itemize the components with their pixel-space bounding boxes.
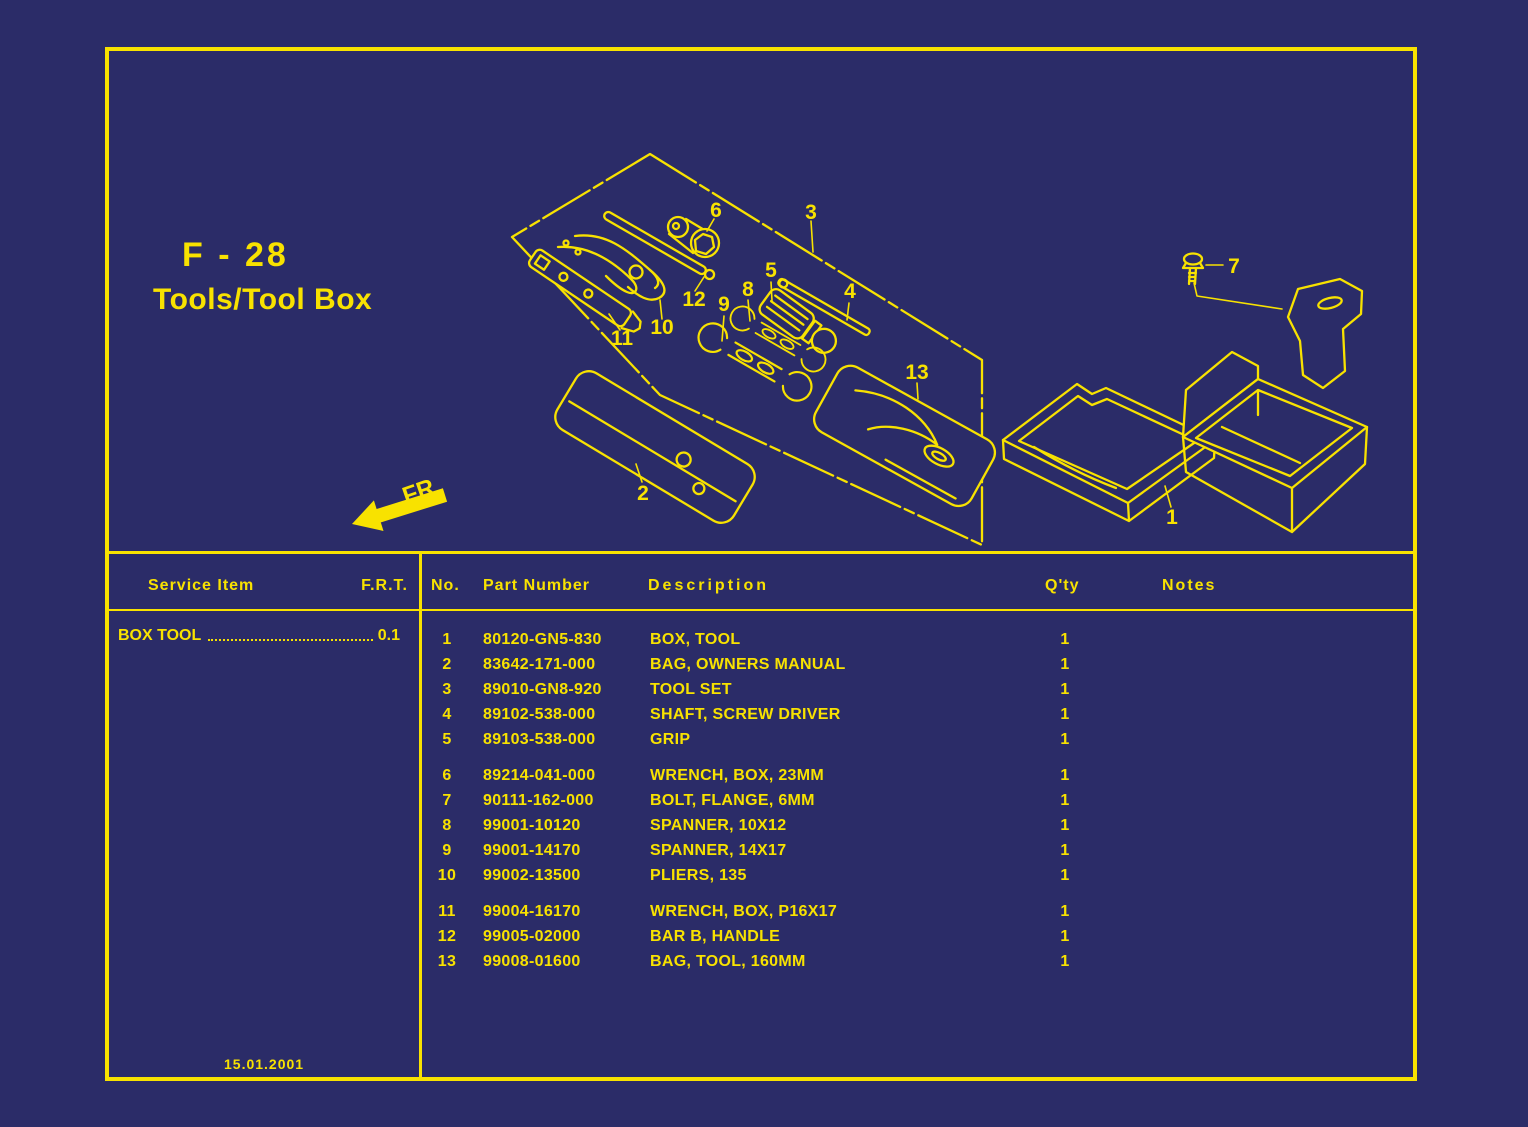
part-description: SPANNER, 10X12 (650, 818, 786, 834)
part-number: 99004-16170 (483, 904, 581, 920)
part-number: 99008-01600 (483, 954, 581, 970)
part-description: PLIERS, 135 (650, 868, 747, 884)
part-number: 99002-13500 (483, 868, 581, 884)
part-qty: 1 (1040, 732, 1090, 748)
part-description: BAR B, HANDLE (650, 929, 780, 945)
table-row: 6 89214-041-000 WRENCH, BOX, 23MM 1 (420, 764, 1417, 789)
part-qty: 1 (1040, 868, 1090, 884)
part-number: 99001-10120 (483, 818, 581, 834)
part-qty: 1 (1040, 657, 1090, 673)
table-row: 10 99002-13500 PLIERS, 135 1 (420, 864, 1417, 889)
part-description: BAG, TOOL, 160MM (650, 954, 806, 970)
part-number: 89102-538-000 (483, 707, 595, 723)
part-number: 99005-02000 (483, 929, 581, 945)
part-qty: 1 (1040, 818, 1090, 834)
part-qty: 1 (1040, 843, 1090, 859)
part-no: 3 (427, 682, 467, 698)
part-qty: 1 (1040, 929, 1090, 945)
part-no: 1 (427, 632, 467, 648)
frt-header: F.R.T. (328, 578, 408, 594)
part-no: 7 (427, 793, 467, 809)
service-row: BOX TOOL 0.1 (118, 628, 400, 644)
col-header-description: Description (648, 578, 769, 594)
part-no: 13 (427, 954, 467, 970)
part-qty: 1 (1040, 707, 1090, 723)
part-description: WRENCH, BOX, P16X17 (650, 904, 837, 920)
table-row: 3 89010-GN8-920 TOOL SET 1 (420, 678, 1417, 703)
part-number: 83642-171-000 (483, 657, 595, 673)
table-row: 9 99001-14170 SPANNER, 14X17 1 (420, 839, 1417, 864)
part-no: 2 (427, 657, 467, 673)
part-no: 8 (427, 818, 467, 834)
service-frt-value: 0.1 (378, 628, 400, 644)
part-description: WRENCH, BOX, 23MM (650, 768, 824, 784)
part-no: 5 (427, 732, 467, 748)
part-description: BAG, OWNERS MANUAL (650, 657, 846, 673)
part-qty: 1 (1040, 904, 1090, 920)
part-qty: 1 (1040, 768, 1090, 784)
page-title: Tools/Tool Box (153, 285, 372, 315)
part-description: BOX, TOOL (650, 632, 740, 648)
part-no: 10 (427, 868, 467, 884)
part-description: BOLT, FLANGE, 6MM (650, 793, 815, 809)
service-item-header: Service Item (148, 578, 254, 594)
col-header-part-number: Part Number (483, 578, 590, 594)
part-no: 9 (427, 843, 467, 859)
diagram-table-separator (107, 551, 1415, 554)
dotted-leader (208, 639, 372, 641)
part-no: 12 (427, 929, 467, 945)
col-header-notes: Notes (1162, 578, 1216, 594)
part-number: 80120-GN5-830 (483, 632, 602, 648)
part-no: 4 (427, 707, 467, 723)
table-row: 12 99005-02000 BAR B, HANDLE 1 (420, 925, 1417, 950)
table-row: 7 90111-162-000 BOLT, FLANGE, 6MM 1 (420, 789, 1417, 814)
table-row: 4 89102-538-000 SHAFT, SCREW DRIVER 1 (420, 703, 1417, 728)
part-number: 90111-162-000 (483, 793, 594, 809)
part-no: 11 (427, 904, 467, 920)
table-row: 11 99004-16170 WRENCH, BOX, P16X17 1 (420, 900, 1417, 925)
part-number: 89103-538-000 (483, 732, 595, 748)
table-row: 5 89103-538-000 GRIP 1 (420, 728, 1417, 753)
revision-date: 15.01.2001 (224, 1057, 304, 1071)
part-qty: 1 (1040, 954, 1090, 970)
table-row: 2 83642-171-000 BAG, OWNERS MANUAL 1 (420, 653, 1417, 678)
part-number: 89010-GN8-920 (483, 682, 602, 698)
table-row: 1 80120-GN5-830 BOX, TOOL 1 (420, 628, 1417, 653)
part-description: SHAFT, SCREW DRIVER (650, 707, 841, 723)
part-no: 6 (427, 768, 467, 784)
part-description: SPANNER, 14X17 (650, 843, 786, 859)
service-item-label: BOX TOOL (118, 628, 201, 644)
table-row: 8 99001-10120 SPANNER, 10X12 1 (420, 814, 1417, 839)
table-header-rule (107, 609, 1415, 611)
col-header-no: No. (431, 578, 460, 594)
part-number: 89214-041-000 (483, 768, 595, 784)
part-qty: 1 (1040, 682, 1090, 698)
part-number: 99001-14170 (483, 843, 581, 859)
parts-rows: 1 80120-GN5-830 BOX, TOOL 1 2 83642-171-… (420, 628, 1417, 988)
part-qty: 1 (1040, 793, 1090, 809)
col-header-qty: Q'ty (1045, 578, 1079, 594)
table-row: 13 99008-01600 BAG, TOOL, 160MM 1 (420, 950, 1417, 975)
page-code: F - 28 (182, 238, 289, 272)
part-description: TOOL SET (650, 682, 732, 698)
part-qty: 1 (1040, 632, 1090, 648)
part-description: GRIP (650, 732, 690, 748)
